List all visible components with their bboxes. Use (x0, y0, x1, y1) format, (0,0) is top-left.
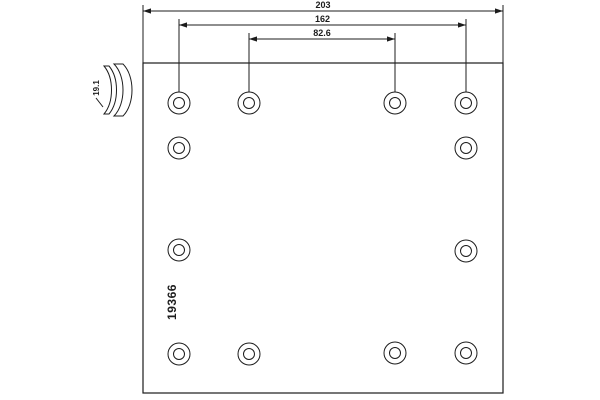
rivet-hole (168, 92, 190, 114)
rivet-hole-inner-circle (244, 98, 255, 109)
rivet-hole (168, 137, 190, 159)
arrowhead-right-icon (387, 36, 395, 41)
dimension-lines: 20316282.6 (143, 0, 503, 93)
rivet-hole (238, 343, 260, 365)
profile-inner-band (104, 66, 117, 114)
rivet-hole-inner-circle (461, 98, 472, 109)
rivet-hole (238, 92, 260, 114)
rivet-hole-inner-circle (244, 349, 255, 360)
arrowhead-right-icon (458, 22, 466, 27)
rivet-hole-inner-circle (174, 98, 185, 109)
rivet-hole (455, 240, 477, 262)
drawing-canvas: 19.1 20316282.6 19366 (0, 0, 600, 400)
part-number: 19366 (165, 284, 179, 320)
rivet-hole (455, 342, 477, 364)
lining-profile-icon: 19.1 (92, 64, 132, 116)
rivet-hole-inner-circle (390, 98, 401, 109)
rivet-hole (168, 239, 190, 261)
rivet-hole-inner-circle (174, 349, 185, 360)
rivet-hole-inner-circle (461, 143, 472, 154)
rivet-hole (168, 343, 190, 365)
dimension-label: 162 (315, 14, 330, 24)
lining-plate-outline (143, 63, 503, 393)
rivet-hole (455, 92, 477, 114)
arrowhead-left-icon (143, 8, 151, 13)
rivet-hole-inner-circle (461, 348, 472, 359)
rivet-hole-inner-circle (174, 143, 185, 154)
dimension-group: 82.6 (249, 28, 395, 93)
profile-thickness-label: 19.1 (92, 80, 101, 96)
profile-leader-line (96, 98, 103, 107)
arrowhead-left-icon (179, 22, 187, 27)
arrowhead-right-icon (495, 8, 503, 13)
rivet-hole-inner-circle (390, 348, 401, 359)
rivet-hole (455, 137, 477, 159)
dimension-label: 82.6 (313, 28, 331, 38)
dimension-label: 203 (315, 0, 330, 10)
arrowhead-left-icon (249, 36, 257, 41)
dimension-group: 162 (179, 14, 466, 93)
brake-lining-technical-drawing: 19.1 20316282.6 19366 (0, 0, 600, 400)
rivet-holes (168, 92, 477, 365)
rivet-hole-inner-circle (174, 245, 185, 256)
rivet-hole-inner-circle (461, 246, 472, 257)
rivet-hole (384, 342, 406, 364)
rivet-hole (384, 92, 406, 114)
